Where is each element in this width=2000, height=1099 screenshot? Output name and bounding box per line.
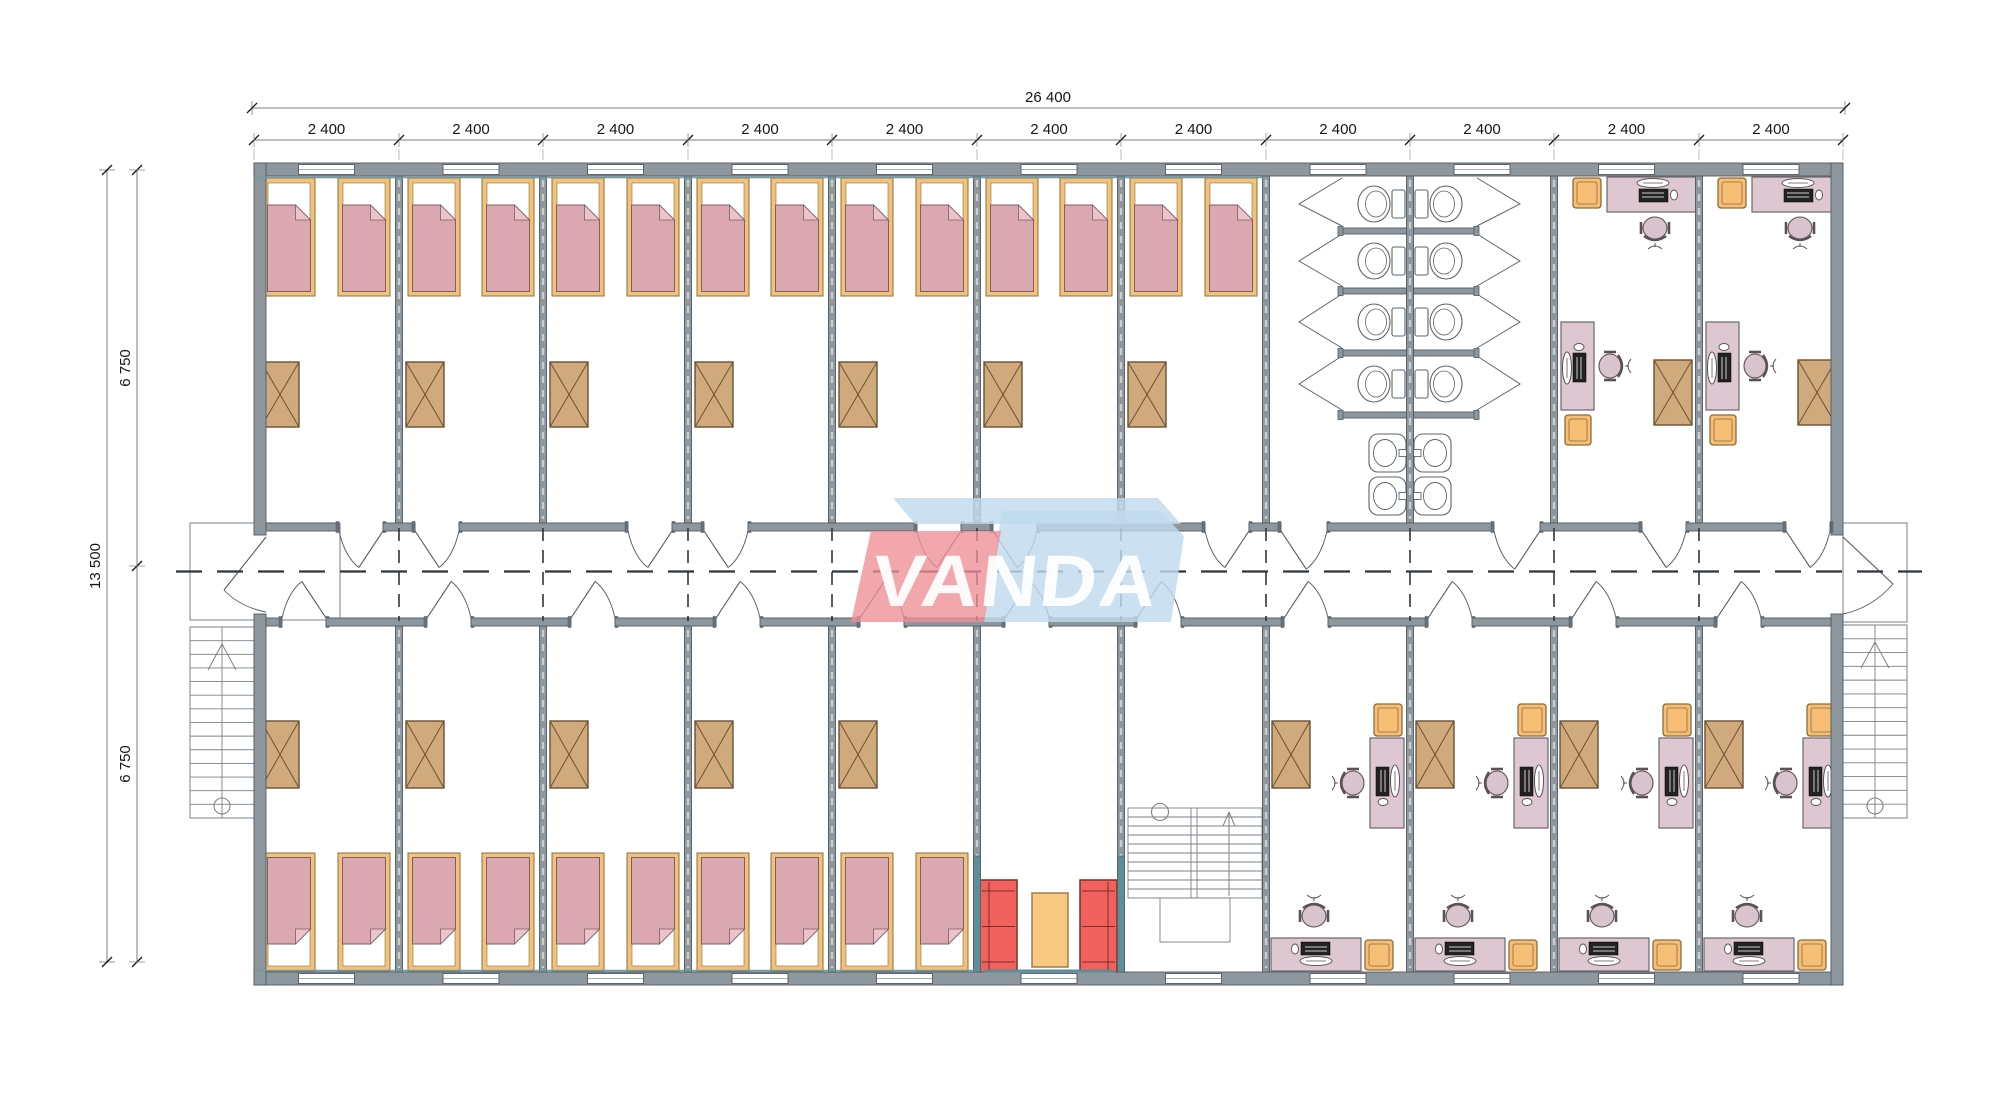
stair-arrow bbox=[1223, 812, 1229, 826]
stall-partition-cap bbox=[1338, 227, 1343, 236]
dim-label-segment: 2 400 bbox=[1752, 121, 1790, 138]
door-jamb bbox=[336, 522, 339, 533]
chair-base bbox=[1793, 246, 1807, 249]
corridor-wall-bottom bbox=[1761, 618, 1831, 626]
door-leaf bbox=[716, 581, 740, 618]
interior-stairwell-layer bbox=[1128, 804, 1262, 943]
dim-label-overall-left: 13 500 bbox=[87, 543, 104, 589]
stall-partition bbox=[1414, 228, 1478, 234]
door-jamb bbox=[701, 522, 704, 533]
door-swing bbox=[1494, 531, 1515, 569]
room-bedroom-top bbox=[550, 178, 679, 427]
corridor-wall-top bbox=[266, 523, 339, 531]
toilet-icon bbox=[1415, 247, 1428, 275]
room-bedroom-top bbox=[406, 178, 534, 427]
stall-partition bbox=[1342, 228, 1407, 234]
mouse bbox=[1522, 799, 1532, 806]
keyboard bbox=[1376, 767, 1389, 796]
chair-seat bbox=[1486, 771, 1508, 795]
mouse bbox=[1671, 190, 1678, 200]
door-swing bbox=[628, 531, 648, 568]
stall-partition-cap bbox=[1474, 287, 1479, 296]
stall-partition bbox=[1414, 412, 1478, 418]
corridor-wall-bottom bbox=[1181, 618, 1284, 626]
mouse bbox=[1725, 944, 1732, 954]
floor-plan-canvas: 26 4002 4002 4002 4002 4002 4002 4002 40… bbox=[0, 0, 2000, 1099]
vanda-logo: VANDA bbox=[851, 498, 1184, 622]
room-lounge bbox=[980, 880, 1117, 973]
door-jamb bbox=[1425, 617, 1428, 628]
door-swing bbox=[439, 531, 459, 568]
dim-label-segment: 2 400 bbox=[741, 121, 779, 138]
room-office-bottom bbox=[1271, 704, 1404, 971]
room-office-top bbox=[1706, 177, 1842, 445]
door-swing bbox=[1452, 581, 1472, 618]
chair-base bbox=[1765, 776, 1768, 790]
mouse bbox=[1811, 799, 1821, 806]
door-swing bbox=[282, 581, 302, 618]
sink-faucet bbox=[1399, 450, 1407, 457]
room-bedroom-top bbox=[1128, 178, 1257, 427]
office-chair-icon bbox=[1444, 895, 1472, 927]
exterior-wall-right bbox=[1831, 614, 1843, 985]
door-swing bbox=[339, 531, 359, 568]
corridor-wall-top bbox=[1249, 523, 1281, 531]
stall-partition-cap bbox=[1474, 349, 1479, 358]
dim-label-overall-top: 26 400 bbox=[1025, 89, 1071, 106]
sink-faucet bbox=[1413, 450, 1421, 457]
exterior-wall-left bbox=[254, 163, 266, 535]
stair-arrow bbox=[208, 644, 222, 670]
chair-seat bbox=[1446, 905, 1470, 927]
door-jamb bbox=[568, 617, 571, 628]
chair-base bbox=[1307, 895, 1321, 898]
office-chair-icon bbox=[1733, 895, 1761, 927]
door-jamb bbox=[1278, 522, 1281, 533]
stall-door bbox=[1477, 294, 1520, 348]
door-leaf bbox=[571, 581, 595, 618]
office-chair-icon bbox=[1476, 769, 1508, 797]
corridor-wall-bottom bbox=[615, 618, 716, 626]
stall-partition bbox=[1342, 412, 1407, 418]
chair-seat bbox=[1599, 354, 1621, 378]
chair-base bbox=[1628, 359, 1631, 373]
door-swing bbox=[1205, 531, 1225, 568]
mouse bbox=[1574, 344, 1584, 351]
corridor-wall-bottom bbox=[1616, 618, 1717, 626]
toilet-icon bbox=[1415, 370, 1428, 398]
stair-arrow bbox=[222, 644, 236, 670]
door-leaf bbox=[302, 581, 326, 618]
stall-door bbox=[1477, 356, 1520, 410]
chair-base bbox=[1773, 359, 1776, 373]
chair-base bbox=[1621, 776, 1624, 790]
chair-base bbox=[1332, 776, 1335, 790]
door-leaf bbox=[415, 531, 439, 568]
dim-label-segment: 2 400 bbox=[886, 121, 924, 138]
office-chair-icon bbox=[1765, 769, 1797, 797]
chair-seat bbox=[1788, 217, 1812, 239]
keyboard bbox=[1573, 353, 1586, 382]
door-jamb bbox=[1281, 617, 1284, 628]
sink-faucet bbox=[1399, 493, 1407, 500]
stair-arrow bbox=[1861, 642, 1875, 668]
door-leaf bbox=[1843, 537, 1893, 584]
keyboard bbox=[1639, 189, 1668, 202]
door-leaf bbox=[648, 531, 672, 568]
chair-base bbox=[1740, 895, 1754, 898]
door-swing bbox=[451, 581, 471, 618]
corridor-wall-bottom bbox=[1328, 618, 1428, 626]
toilet-icon bbox=[1392, 308, 1405, 336]
door-swing bbox=[740, 581, 760, 618]
door-leaf bbox=[1515, 531, 1540, 569]
stair-arrow bbox=[1875, 642, 1889, 668]
door-jamb bbox=[1714, 617, 1717, 628]
room-office-top bbox=[1561, 177, 1697, 445]
lounge-wall-accent bbox=[974, 856, 981, 972]
door-jamb bbox=[1202, 522, 1205, 533]
door-leaf bbox=[1572, 581, 1596, 618]
keyboard bbox=[1784, 189, 1813, 202]
exterior-wall-right bbox=[1831, 163, 1843, 535]
stall-partition bbox=[1342, 288, 1407, 294]
door-jamb bbox=[1491, 522, 1494, 533]
chair-base bbox=[1451, 895, 1465, 898]
office-chair-icon bbox=[1641, 217, 1669, 249]
chair-seat bbox=[1643, 217, 1667, 239]
mouse bbox=[1292, 944, 1299, 954]
stall-partition-cap bbox=[1338, 411, 1343, 420]
corridor-wall-top bbox=[1830, 523, 1831, 531]
door-jamb bbox=[1783, 522, 1786, 533]
door-swing bbox=[1596, 581, 1616, 618]
office-chair-icon bbox=[1332, 769, 1364, 797]
chair-seat bbox=[1302, 905, 1326, 927]
room-bedroom-bottom bbox=[550, 721, 679, 971]
stall-partition-cap bbox=[1474, 411, 1479, 420]
mouse bbox=[1816, 190, 1823, 200]
door-swing bbox=[224, 590, 266, 612]
stair-lower-run bbox=[1160, 898, 1230, 942]
chair-seat bbox=[1775, 771, 1797, 795]
door-jamb bbox=[412, 522, 415, 533]
keyboard bbox=[1301, 942, 1330, 955]
stall-partition-cap bbox=[1338, 287, 1343, 296]
chair-seat bbox=[1631, 771, 1653, 795]
stall-partition-cap bbox=[1474, 227, 1479, 236]
chair-seat bbox=[1342, 771, 1364, 795]
floor-plan-svg: 26 4002 4002 4002 4002 4002 4002 4002 40… bbox=[0, 0, 2000, 1099]
office-chair-icon bbox=[1786, 217, 1814, 249]
keyboard bbox=[1520, 767, 1533, 796]
office-chair-icon bbox=[1621, 769, 1653, 797]
chair-seat bbox=[1735, 905, 1759, 927]
mouse bbox=[1719, 344, 1729, 351]
stall-partition bbox=[1414, 288, 1478, 294]
stall-door bbox=[1299, 234, 1342, 286]
door-leaf bbox=[1281, 531, 1306, 569]
lounge-wall-accent bbox=[1118, 856, 1125, 972]
mouse bbox=[1580, 944, 1587, 954]
corridor-wall-top bbox=[1540, 523, 1642, 531]
office-chair-icon bbox=[1300, 895, 1328, 927]
office-chair-icon bbox=[1744, 352, 1776, 380]
mouse bbox=[1378, 799, 1388, 806]
door-jamb bbox=[424, 617, 427, 628]
corridor-wall-bottom bbox=[760, 618, 860, 626]
dim-label-segment: 2 400 bbox=[1030, 121, 1068, 138]
stall-door bbox=[1477, 234, 1520, 286]
dim-label-segment: 2 400 bbox=[597, 121, 635, 138]
dim-label-half-top: 6 750 bbox=[117, 349, 134, 387]
door-swing bbox=[1306, 531, 1327, 569]
keyboard bbox=[1718, 353, 1731, 382]
room-bedroom-bottom bbox=[839, 721, 968, 971]
chair-seat bbox=[1590, 905, 1614, 927]
door-swing bbox=[1810, 531, 1830, 568]
door-jamb bbox=[713, 617, 716, 628]
keyboard bbox=[1589, 942, 1618, 955]
dim-label-segment: 2 400 bbox=[452, 121, 490, 138]
stall-partition bbox=[1342, 350, 1407, 356]
coffee-table-icon bbox=[1032, 893, 1068, 967]
chair-seat bbox=[1744, 354, 1766, 378]
door-swing bbox=[728, 531, 748, 568]
corridor-wall-bottom bbox=[471, 618, 571, 626]
stall-partition bbox=[1414, 350, 1478, 356]
room-office-bottom bbox=[1415, 704, 1548, 971]
room-bedroom-bottom bbox=[261, 721, 390, 971]
mouse bbox=[1667, 799, 1677, 806]
toilet-icon bbox=[1392, 247, 1405, 275]
keyboard bbox=[1445, 942, 1474, 955]
door-swing bbox=[1843, 584, 1893, 614]
toilet-icon bbox=[1392, 370, 1405, 398]
door-leaf bbox=[1428, 581, 1452, 618]
room-bedroom-top bbox=[261, 178, 390, 427]
room-bedroom-top bbox=[839, 178, 968, 427]
door-jamb bbox=[1569, 617, 1572, 628]
logo-wordmark: VANDA bbox=[868, 540, 1163, 622]
door-swing bbox=[1308, 581, 1328, 618]
exterior-wall-left bbox=[254, 614, 266, 985]
door-leaf bbox=[1225, 531, 1249, 568]
stall-door bbox=[1477, 178, 1520, 226]
door-leaf bbox=[427, 581, 451, 618]
corridor-wall-bottom bbox=[1472, 618, 1572, 626]
chair-base bbox=[1595, 895, 1609, 898]
room-bedroom-top bbox=[984, 178, 1112, 427]
stall-partition-cap bbox=[1338, 349, 1343, 358]
office-chair-icon bbox=[1599, 352, 1631, 380]
dim-label-segment: 2 400 bbox=[1319, 121, 1357, 138]
door-leaf bbox=[1786, 531, 1810, 568]
corridor-wall-top bbox=[1686, 523, 1786, 531]
room-office-bottom bbox=[1559, 704, 1693, 971]
chair-base bbox=[1648, 246, 1662, 249]
door-swing bbox=[1666, 531, 1686, 568]
keyboard bbox=[1665, 767, 1678, 796]
door-leaf bbox=[704, 531, 728, 568]
dim-label-segment: 2 400 bbox=[1608, 121, 1646, 138]
room-bedroom-bottom bbox=[695, 721, 823, 971]
door-swing bbox=[1741, 581, 1761, 618]
door-jamb bbox=[279, 617, 282, 628]
keyboard bbox=[1734, 942, 1763, 955]
stall-door bbox=[1299, 178, 1342, 226]
door-jamb bbox=[1639, 522, 1642, 533]
room-bedroom-top bbox=[695, 178, 823, 427]
room-bedroom-bottom bbox=[406, 721, 534, 971]
toilet-icon bbox=[1392, 190, 1405, 218]
door-leaf bbox=[1642, 531, 1666, 568]
dim-label-segment: 2 400 bbox=[1463, 121, 1501, 138]
keyboard bbox=[1809, 767, 1822, 796]
mouse bbox=[1436, 944, 1443, 954]
stall-door bbox=[1299, 356, 1342, 410]
toilet-icon bbox=[1415, 190, 1428, 218]
dim-label-segment: 2 400 bbox=[308, 121, 346, 138]
door-leaf bbox=[224, 537, 266, 590]
door-jamb bbox=[625, 522, 628, 533]
dim-label-segment: 2 400 bbox=[1175, 121, 1213, 138]
stair-walkline-start bbox=[1152, 804, 1169, 821]
door-leaf bbox=[1284, 581, 1308, 618]
room-office-bottom bbox=[1704, 704, 1837, 971]
door-swing bbox=[595, 581, 615, 618]
corridor-wall-bottom bbox=[326, 618, 427, 626]
dim-label-half-bottom: 6 750 bbox=[117, 745, 134, 783]
chair-base bbox=[1476, 776, 1479, 790]
door-leaf bbox=[359, 531, 383, 568]
sink-faucet bbox=[1413, 493, 1421, 500]
office-chair-icon bbox=[1588, 895, 1616, 927]
stall-door bbox=[1299, 294, 1342, 348]
toilet-icon bbox=[1415, 308, 1428, 336]
door-leaf bbox=[1717, 581, 1741, 618]
stair-arrow bbox=[1229, 812, 1235, 826]
